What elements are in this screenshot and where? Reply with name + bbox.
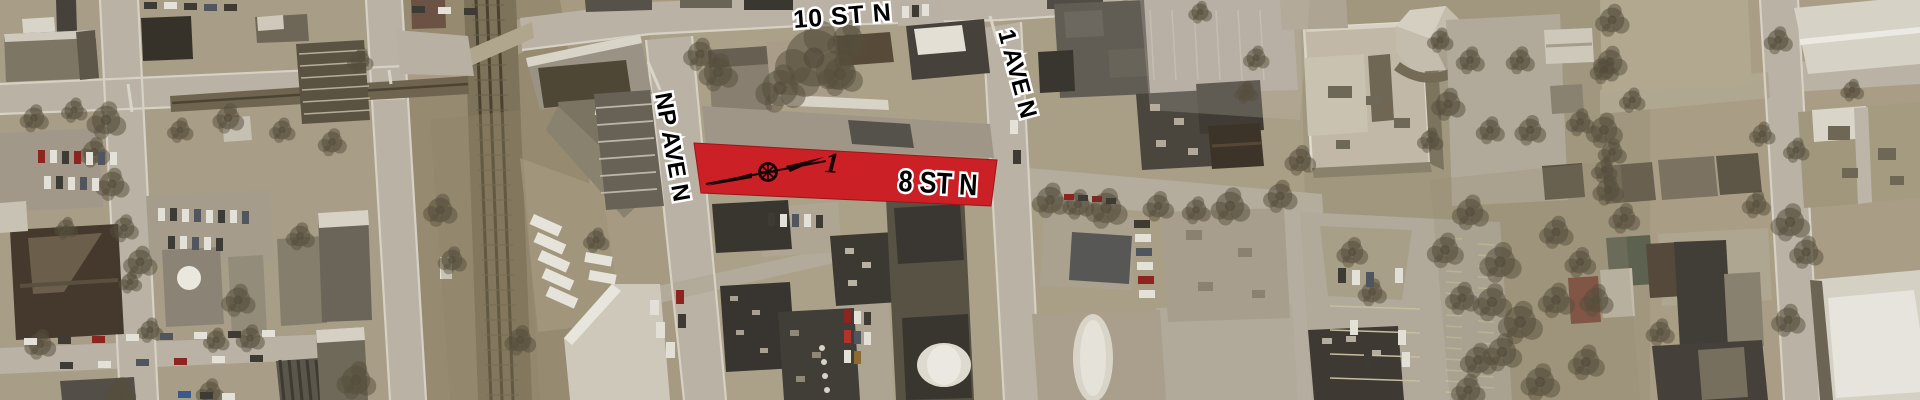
svg-text:8 ST N: 8 ST N [898,165,979,202]
svg-text:1: 1 [824,147,841,180]
